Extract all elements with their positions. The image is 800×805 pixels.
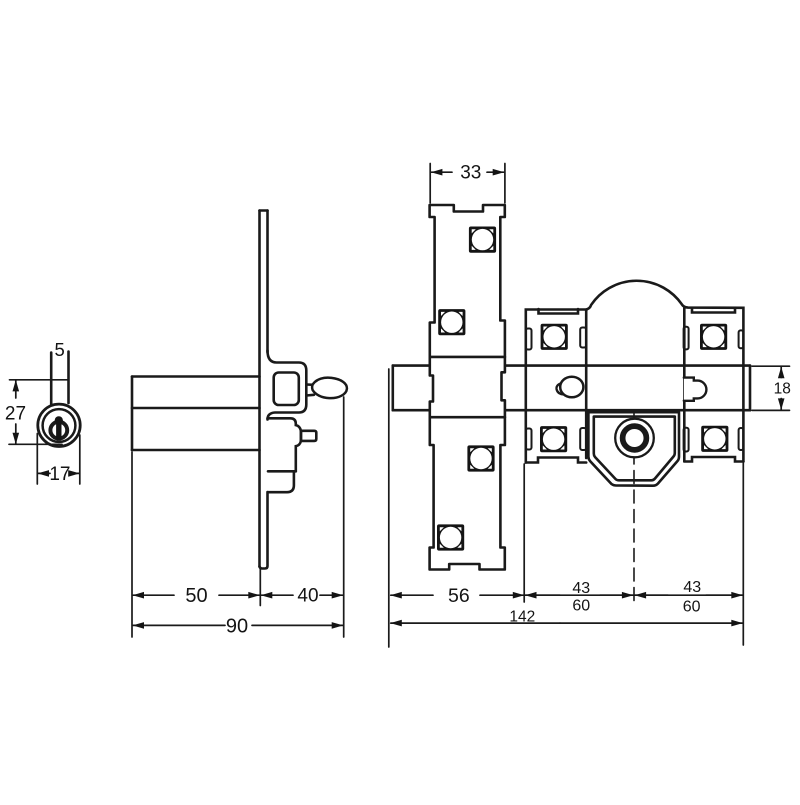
svg-text:43: 43 bbox=[683, 579, 701, 596]
svg-text:40: 40 bbox=[297, 585, 318, 606]
svg-text:60: 60 bbox=[683, 598, 701, 615]
svg-text:33: 33 bbox=[460, 163, 481, 184]
svg-text:18: 18 bbox=[774, 381, 791, 398]
svg-text:5: 5 bbox=[55, 339, 65, 360]
svg-text:43: 43 bbox=[572, 580, 590, 597]
svg-text:50: 50 bbox=[185, 585, 207, 607]
svg-text:56: 56 bbox=[448, 585, 470, 607]
svg-text:60: 60 bbox=[572, 598, 590, 615]
svg-text:142: 142 bbox=[509, 608, 535, 625]
svg-text:90: 90 bbox=[226, 615, 248, 637]
svg-text:27: 27 bbox=[5, 404, 26, 425]
svg-text:17: 17 bbox=[49, 464, 70, 485]
